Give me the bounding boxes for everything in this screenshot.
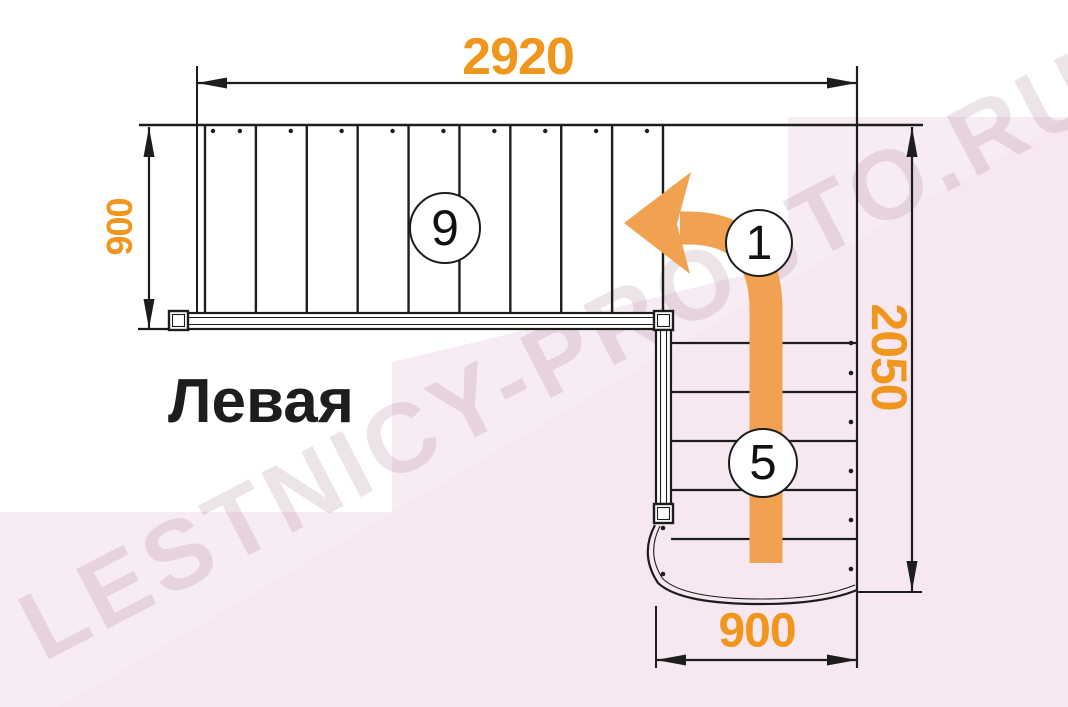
stair-plan-diagram: LESTNICY-PROSTO.RU: [0, 0, 1068, 707]
dimension-left-label: 900: [99, 198, 141, 255]
step-count-badge-lower: 5: [728, 428, 798, 498]
dimension-right-label: 2050: [860, 303, 918, 410]
labels-layer: 2920 900 2050 900 Левая 9 1 5: [0, 0, 1068, 707]
step-count-badge-upper: 9: [409, 192, 481, 264]
dimension-bottom-label: 900: [718, 604, 795, 659]
dimension-top-label: 2920: [462, 27, 574, 87]
step-number-badge-start: 1: [725, 209, 793, 277]
plan-orientation-label: Левая: [168, 366, 354, 437]
